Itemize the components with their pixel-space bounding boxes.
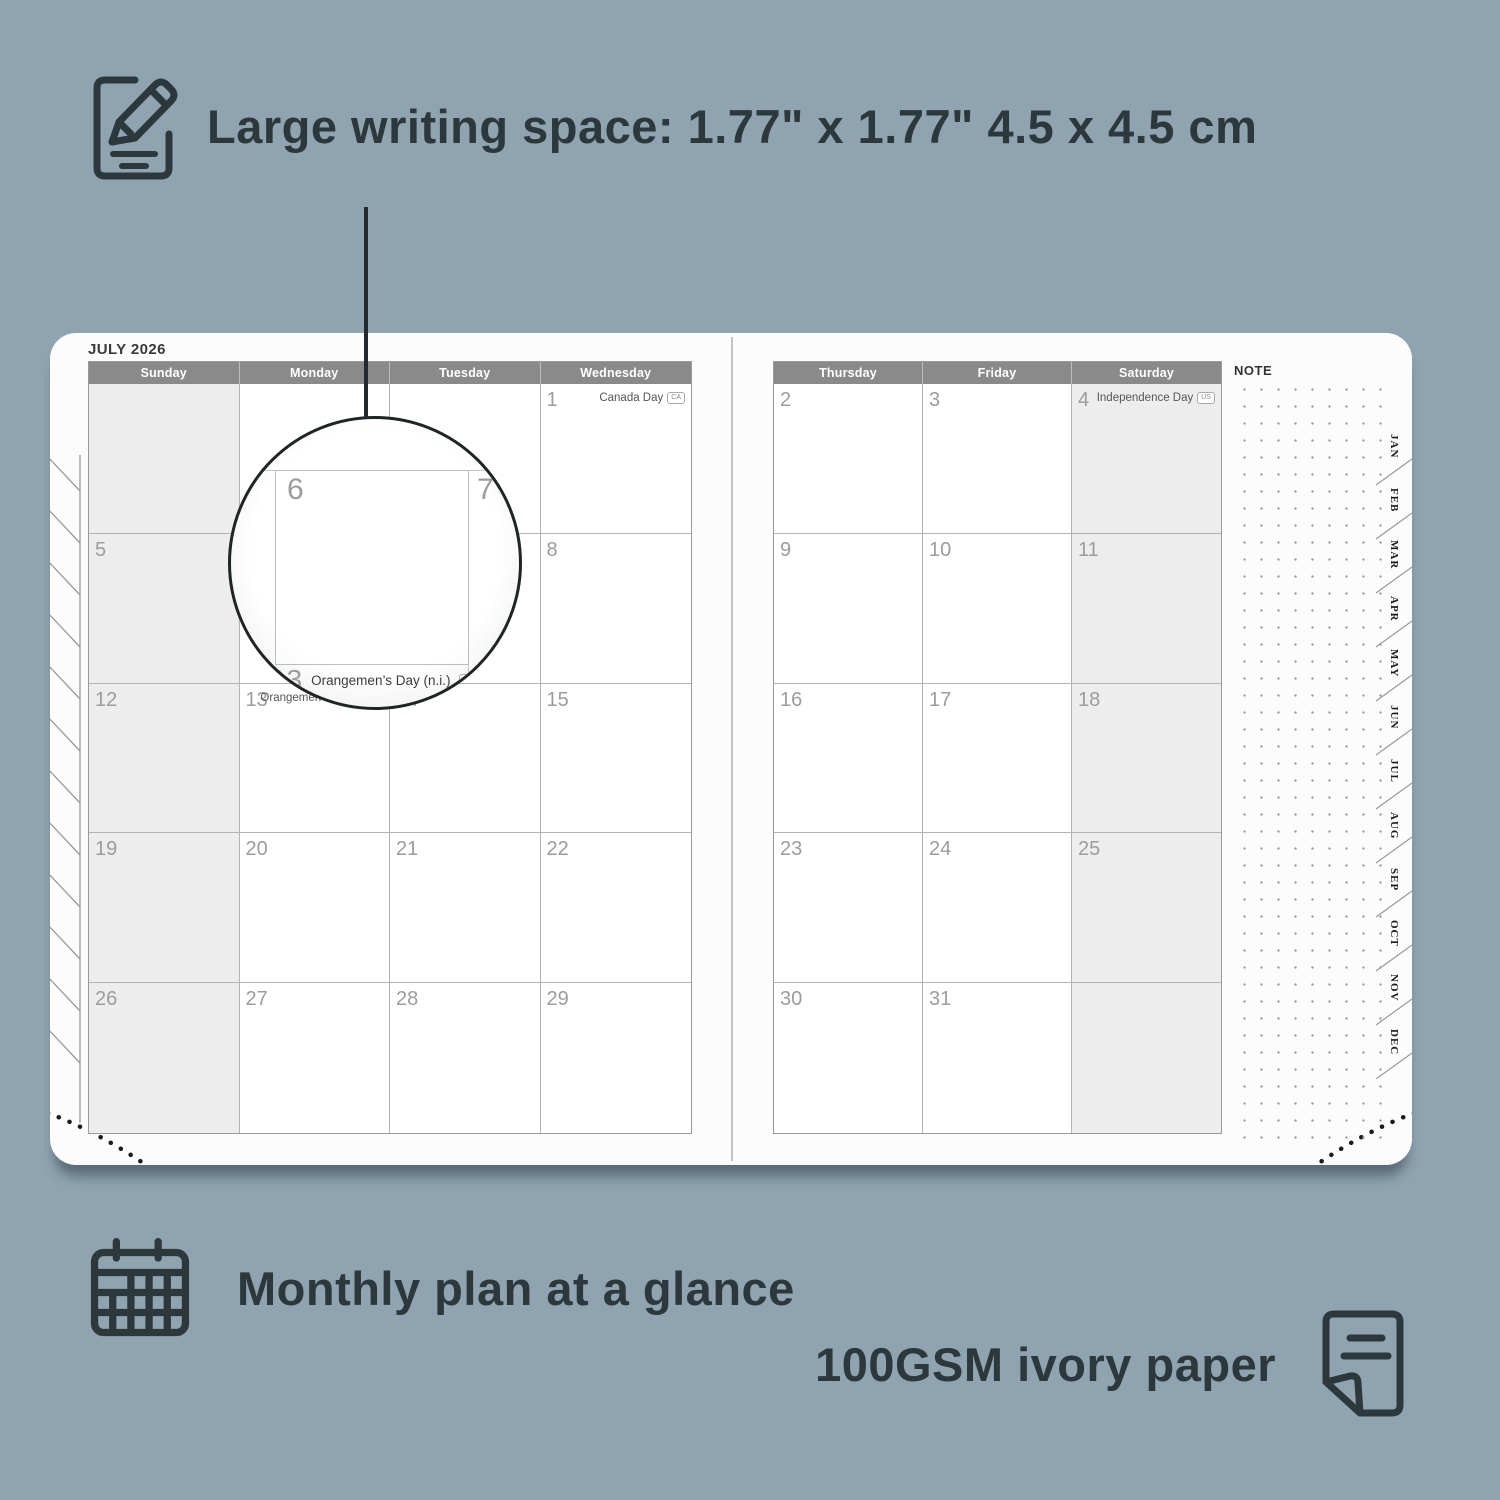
paper-icon [1318,1308,1408,1420]
notepad-pencil-icon [85,72,185,180]
country-badge: UK [459,674,478,686]
day-number: 30 [780,988,802,1010]
month-tab-dec: DEC [1376,1015,1412,1069]
magnified-day: 6 [287,473,304,507]
month-tab-jun: JUN [1376,690,1412,744]
day-cell: 26 [89,983,240,1133]
feature-monthly-plan-text: Monthly plan at a glance [237,1261,795,1316]
month-tab-label: NOV [1388,974,1400,1001]
day-number: 18 [1078,689,1100,711]
day-header: Friday [923,362,1072,384]
month-tab-feb: FEB [1376,473,1412,527]
day-number: 27 [246,988,268,1010]
day-cell: 8 [541,534,692,684]
day-number: 2 [780,389,791,411]
holiday-row: Canada DayCA [599,392,685,404]
feature-writing-space: Large writing space: 1.77" x 1.77" 4.5 x… [85,72,1257,180]
left-page-edge-hatch [50,455,80,1123]
dot-grid [1232,375,1382,1139]
day-number: 11 [1078,539,1099,561]
month-tab-oct: OCT [1376,907,1412,961]
country-badge: CA [667,392,685,404]
day-cell [89,384,240,534]
day-number: 24 [929,838,951,860]
month-tab-label: MAY [1388,649,1400,677]
holiday-label: Canada Day [599,392,663,404]
day-cell: 11 [1072,534,1221,684]
magnified-day: 7 [477,473,494,507]
month-tab-label: MAR [1388,540,1400,569]
day-number: 28 [396,988,418,1010]
day-cell: 25 [1072,833,1221,983]
day-number: 21 [396,838,418,860]
month-tab-label: JUN [1388,705,1400,729]
day-cell: 18 [1072,684,1221,834]
day-header: Wednesday [541,362,692,384]
month-tab-strip: JANFEBMARAPRMAYJUNJULAUGSEPOCTNOVDEC [1376,419,1412,1069]
callout-line [364,207,368,419]
month-tab-label: JAN [1388,434,1400,458]
day-header: Sunday [89,362,240,384]
feature-writing-space-text: Large writing space: 1.77" x 1.77" 4.5 x… [207,99,1257,154]
month-tab-label: JUL [1388,759,1400,783]
day-cell: 24 [923,833,1072,983]
day-cell: 5 [89,534,240,684]
day-cell: 27 [240,983,391,1133]
day-number: 29 [547,988,569,1010]
day-cell: 16 [774,684,923,834]
magnified-day: 13 [271,664,302,696]
calendar-grid-right: ThursdayFridaySaturday234Independence Da… [773,361,1222,1134]
month-tab-jul: JUL [1376,744,1412,798]
feature-paper: 100GSM ivory paper [815,1308,1408,1420]
month-tab-label: SEP [1388,868,1400,891]
day-number: 12 [95,689,117,711]
month-tab-mar: MAR [1376,527,1412,581]
day-header: Thursday [774,362,923,384]
day-number: 23 [780,838,802,860]
day-number: 19 [95,838,117,860]
day-cell: 9 [774,534,923,684]
day-cell: 1Canada DayCA [541,384,692,534]
planner-spread: JULY 2026 SundayMondayTuesdayWednesday1C… [50,333,1412,1165]
day-cell: 12 [89,684,240,834]
day-cell: 23 [774,833,923,983]
day-cell: 22 [541,833,692,983]
day-header: Tuesday [390,362,541,384]
country-badge: US [1197,392,1215,404]
month-tab-apr: APR [1376,582,1412,636]
calendar-icon [85,1238,195,1338]
magnified-holiday-row: 13 Orangemen’s Day (n.i.) UK [271,664,479,696]
day-cell: 20 [240,833,391,983]
day-number: 5 [95,539,106,561]
day-cell: 29 [541,983,692,1133]
feature-paper-text: 100GSM ivory paper [815,1337,1276,1392]
day-number: 3 [929,389,940,411]
month-tab-aug: AUG [1376,798,1412,852]
day-number: 10 [929,539,951,561]
month-tab-label: OCT [1388,920,1400,947]
day-number: 1 [547,389,558,411]
holiday-row: Independence DayUS [1097,392,1215,404]
month-tab-nov: NOV [1376,961,1412,1015]
day-cell: 3 [923,384,1072,534]
day-cell: 28 [390,983,541,1133]
day-cell: 31 [923,983,1072,1133]
day-number: 31 [929,988,951,1010]
day-cell: 2 [774,384,923,534]
month-tab-may: MAY [1376,636,1412,690]
day-cell [1072,983,1221,1133]
day-number: 16 [780,689,802,711]
day-cell: 4Independence DayUS [1072,384,1221,534]
day-cell: 14 [390,684,541,834]
day-header: Saturday [1072,362,1221,384]
day-cell: 15 [541,684,692,834]
month-tab-jan: JAN [1376,419,1412,473]
holiday-label: Independence Day [1097,392,1194,404]
day-cell: 21 [390,833,541,983]
month-tab-label: FEB [1388,488,1400,512]
day-number: 22 [547,838,569,860]
day-cell: 10 [923,534,1072,684]
day-number: 8 [547,539,558,561]
day-cell: 19 [89,833,240,983]
month-tab-label: AUG [1388,812,1400,839]
day-cell: 30 [774,983,923,1133]
page-spine [731,337,733,1161]
day-number: 26 [95,988,117,1010]
magnifier-circle: 6 7 13 Orangemen’s Day (n.i.) UK [228,416,522,710]
note-label: NOTE [1234,363,1275,380]
writing-space-square [275,470,469,665]
day-number: 4 [1078,389,1089,411]
month-tab-label: APR [1388,596,1400,622]
day-number: 20 [246,838,268,860]
month-tab-label: DEC [1388,1029,1400,1055]
magnified-holiday: Orangemen’s Day (n.i.) [311,673,450,688]
day-number: 9 [780,539,791,561]
day-cell: 17 [923,684,1072,834]
product-image: Large writing space: 1.77" x 1.77" 4.5 x… [0,0,1500,1500]
month-title: JULY 2026 [88,341,166,358]
note-section: NOTE [1232,363,1382,1139]
day-number: 25 [1078,838,1100,860]
feature-monthly-plan: Monthly plan at a glance [85,1238,795,1338]
day-number: 17 [929,689,951,711]
month-tab-sep: SEP [1376,853,1412,907]
day-number: 15 [547,689,569,711]
